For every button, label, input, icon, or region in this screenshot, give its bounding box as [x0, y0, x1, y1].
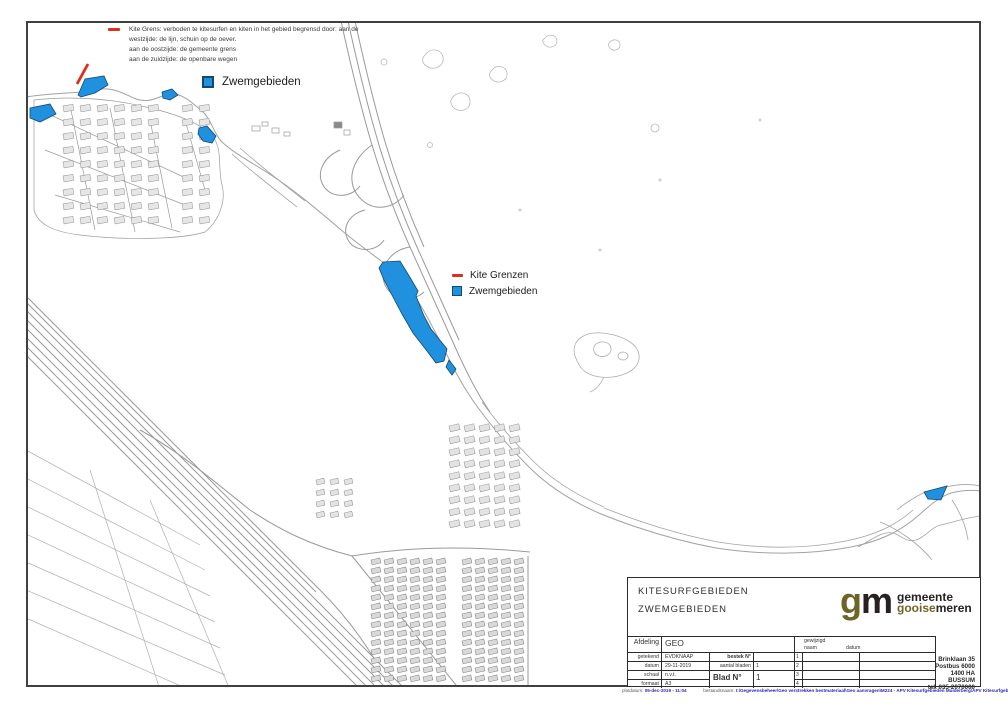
formaat-label: formaat [628, 680, 659, 688]
municipality-address: Brinklaan 35 Postbus 6000 1400 HA BUSSUM… [923, 656, 975, 691]
zwemgebieden-label: Zwemgebieden [469, 286, 537, 297]
getekend-value: EVDKNAAP [665, 653, 693, 661]
afdeling-label: Afdeling [628, 639, 659, 647]
swim-area-swatch [202, 76, 214, 88]
rev-row-number: 1 [796, 653, 799, 661]
village-blocks [63, 104, 210, 224]
title-block: KITESURFGEBIEDEN ZWEMGEBIEDEN gm gemeent… [627, 577, 981, 687]
rev-row-number: 3 [796, 671, 799, 679]
kite-grenzen-label: Kite Grenzen [470, 270, 528, 281]
plot-footer: plotdatum: 05-dec-2019 - 11:04 bestandsn… [622, 688, 1008, 693]
address-line: Postbus 6000 [923, 663, 975, 670]
getekend-label: getekend [628, 653, 659, 661]
sheet-title-line1: KITESURFGEBIEDEN [638, 586, 748, 597]
kite-note-line: aan de zuidzijde: de openbare wegen [129, 55, 358, 65]
kite-line-swatch [108, 28, 120, 31]
map-legend: Kite Grenzen Zwemgebieden [452, 267, 537, 299]
zwemgebieden-legend-top: Zwemgebieden [202, 76, 301, 88]
kite-note-line: Kite Grens: verboden te kitesurfen en ki… [129, 25, 358, 35]
swim-area-swatch [452, 286, 462, 296]
formaat-value: A3 [665, 680, 671, 688]
logo-gooisemeren: gooisemeren [897, 603, 972, 614]
map-sheet: Kite Grens: verboden te kitesurfen en ki… [0, 0, 1008, 713]
bestandsnaam-value: I:\Gegevensbeheer\Geo verstrekken bestma… [736, 688, 1008, 693]
afdeling-value: GEO [665, 639, 684, 647]
logo-m: m [861, 580, 892, 621]
datum-value: 29-11-2019 [665, 662, 691, 670]
datum-label: datum [628, 662, 659, 670]
swim-area-polygon [162, 89, 178, 100]
map-shore-blobs [381, 35, 761, 251]
kite-note-line: westzijde: de lijn, schuin op de oever. [129, 35, 358, 45]
gemeente-logo: gm gemeente gooisemeren [840, 584, 972, 618]
swim-area-polygon [379, 261, 447, 363]
map-fields [26, 450, 230, 690]
bestek-label: bestek N° [711, 653, 751, 661]
naam-label: naam [804, 644, 817, 652]
swim-area-polygon [78, 76, 108, 97]
blad-label: Blad N° [713, 674, 742, 682]
aantal-bladen-value: 1 [756, 662, 759, 670]
address-line: Brinklaan 35 [923, 656, 975, 663]
blad-value: 1 [756, 674, 760, 682]
legend-item-swim: Zwemgebieden [452, 283, 537, 299]
rev-row-number: 2 [796, 662, 799, 670]
kite-grens-legend: Kite Grens: verboden te kitesurfen en ki… [108, 25, 358, 65]
schaal-value: n.v.t. [665, 671, 676, 679]
map-island [574, 333, 639, 392]
sheet-title-line2: ZWEMGEBIEDEN [638, 604, 727, 615]
zwemgebieden-label: Zwemgebieden [222, 76, 301, 88]
aantal-bladen-label: aantal bladen [711, 662, 751, 670]
plotdatum-value: 05-dec-2019 - 11:04 [645, 688, 687, 693]
logo-g: g [840, 580, 861, 621]
swim-area-polygon [924, 486, 947, 500]
swim-area-polygon [446, 360, 456, 375]
datum-col-label: datum [846, 644, 860, 652]
kite-line-swatch [452, 274, 463, 277]
schaal-label: schaal [628, 671, 659, 679]
plotdatum-label: plotdatum: [622, 688, 643, 693]
bestandsnaam-label: bestandsnaam: [703, 688, 734, 693]
rev-row-number: 4 [796, 680, 799, 688]
town-blocks [316, 424, 524, 682]
address-line: 1400 HA BUSSUM [923, 670, 975, 684]
legend-item-kite: Kite Grenzen [452, 267, 537, 283]
kite-note-line: aan de oostzijde: de gemeente grens [129, 45, 358, 55]
